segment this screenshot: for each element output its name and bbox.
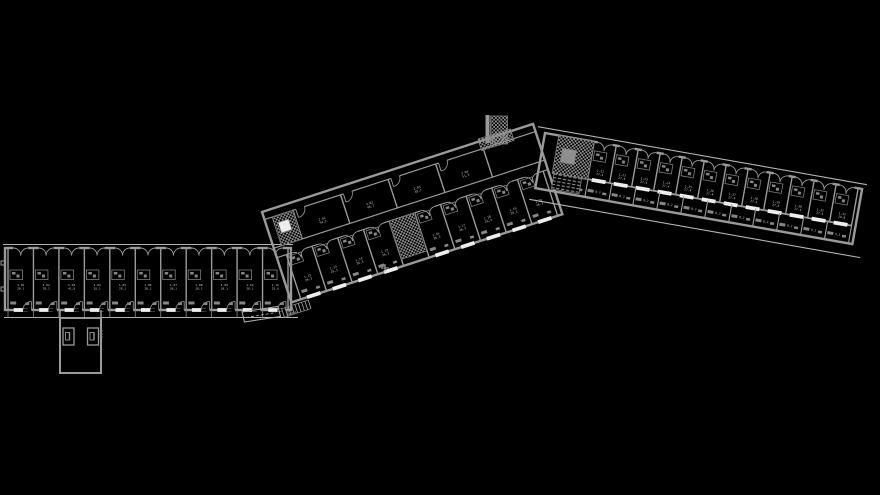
furniture-symbol	[265, 302, 271, 305]
furniture-symbol	[188, 302, 194, 305]
room-label: 1.2527,4	[684, 184, 693, 193]
room-label: 1.1125,6	[272, 283, 279, 290]
room-label: 1.3127,4	[816, 207, 825, 216]
room-label: 1.0228,1	[43, 283, 50, 290]
furniture-symbol	[87, 302, 93, 305]
room-label: 1.2827,4	[750, 196, 759, 205]
room-label: 1.0828,1	[195, 283, 202, 290]
room-label: 1.1028,1	[246, 283, 253, 290]
room-label: 1.2127,4	[596, 169, 605, 178]
room-label: 1.2627,4	[706, 188, 715, 197]
room-label: 1.0341,8	[68, 283, 75, 290]
room-label: 1.3027,4	[794, 204, 803, 213]
room-label: 1.3229,8	[838, 211, 847, 220]
room-label: 1.2227,4	[618, 172, 627, 181]
furniture-symbol	[138, 302, 144, 305]
room-label: 1.0128,1	[17, 283, 24, 290]
room-label: 1.0628,1	[144, 283, 151, 290]
furniture-symbol	[239, 302, 245, 305]
furniture-symbol	[112, 302, 118, 305]
furniture-symbol	[36, 302, 42, 305]
floorplan: 1.0128,11.0228,11.0341,81.0428,11.0528,1…	[0, 0, 880, 495]
furniture-symbol	[163, 302, 169, 305]
room-label: 1.0528,1	[119, 283, 126, 290]
room-label: 1.2327,4	[640, 176, 649, 185]
room-label: 1.0428,1	[93, 283, 100, 290]
furniture-symbol	[61, 302, 67, 305]
room-label: 1.0728,1	[170, 283, 177, 290]
furniture-symbol	[214, 302, 220, 305]
room-label: 1.2927,4	[772, 200, 781, 209]
stair-hatch	[560, 148, 576, 164]
room-label: 1.0928,1	[221, 283, 228, 290]
floorplan-canvas: 1.0128,11.0228,11.0341,81.0428,11.0528,1…	[0, 0, 880, 495]
room-label: 1.2427,4	[662, 180, 671, 189]
room-label: 1.2727,4	[728, 192, 737, 201]
furniture-symbol	[10, 302, 16, 305]
